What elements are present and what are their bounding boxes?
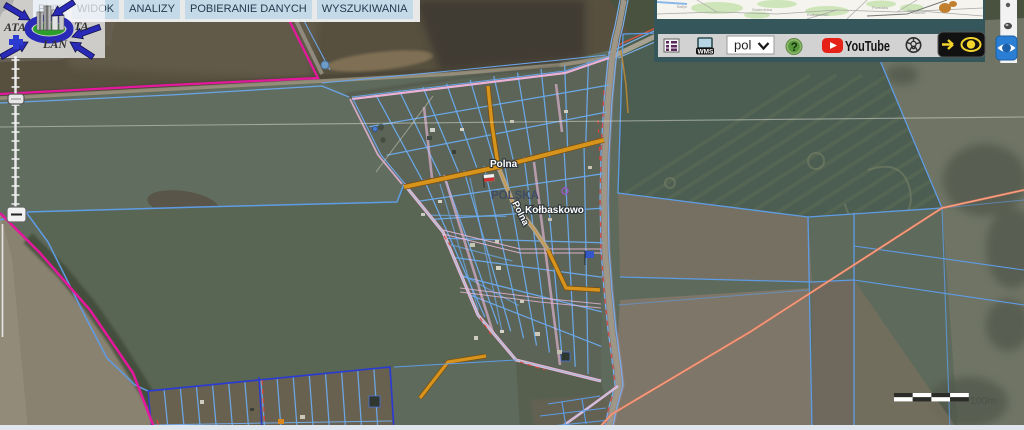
svg-text:Przeclaw: Przeclaw [872, 5, 888, 10]
svg-text:Polna: Polna [490, 159, 518, 170]
svg-text:WMS: WMS [698, 49, 715, 56]
svg-text:YouTube: YouTube [845, 38, 890, 55]
svg-text:LAN: LAN [42, 37, 68, 51]
svg-text:Kolbaskowo: Kolbaskowo [807, 12, 829, 17]
svg-text:pol: pol [734, 38, 751, 53]
svg-text:POLSKA: POLSKA [491, 190, 539, 202]
svg-text:?: ? [791, 42, 798, 54]
svg-text:TA: TA [74, 19, 89, 33]
svg-text:100m: 100m [970, 395, 997, 407]
svg-text:Smierdnica: Smierdnica [752, 7, 773, 12]
svg-text:ATA: ATA [3, 20, 26, 34]
svg-text:Kołbaskowo: Kołbaskowo [525, 205, 584, 216]
svg-text:Ustowo: Ustowo [912, 10, 926, 15]
svg-text:Bafyn: Bafyn [677, 4, 687, 9]
